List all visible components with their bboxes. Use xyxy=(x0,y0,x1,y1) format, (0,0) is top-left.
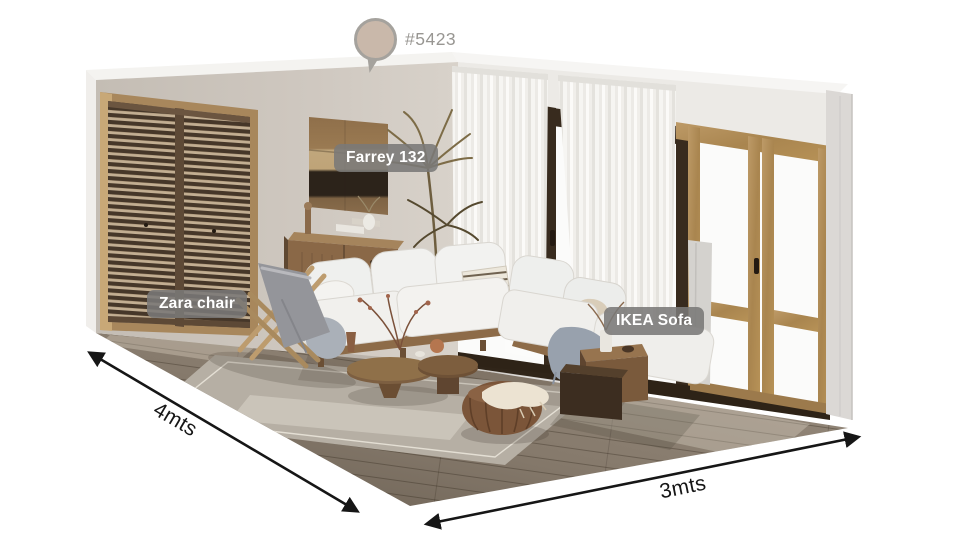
swatch-pin-tail xyxy=(365,58,378,74)
color-swatch-pin[interactable] xyxy=(352,16,412,76)
tag-ikea-sofa[interactable]: IKEA Sofa xyxy=(604,307,704,335)
color-swatch[interactable] xyxy=(354,18,397,61)
tag-zara-chair[interactable]: Zara chair xyxy=(147,290,247,318)
color-code-label: #5423 xyxy=(405,29,456,50)
wall-pilaster xyxy=(826,90,852,420)
room-visualization-canvas: #5423 Farrey 132 Zara chair IKEA Sofa 4m… xyxy=(0,0,954,544)
tag-artwork-farrey-132[interactable]: Farrey 132 xyxy=(334,144,438,172)
room-render xyxy=(0,0,954,544)
